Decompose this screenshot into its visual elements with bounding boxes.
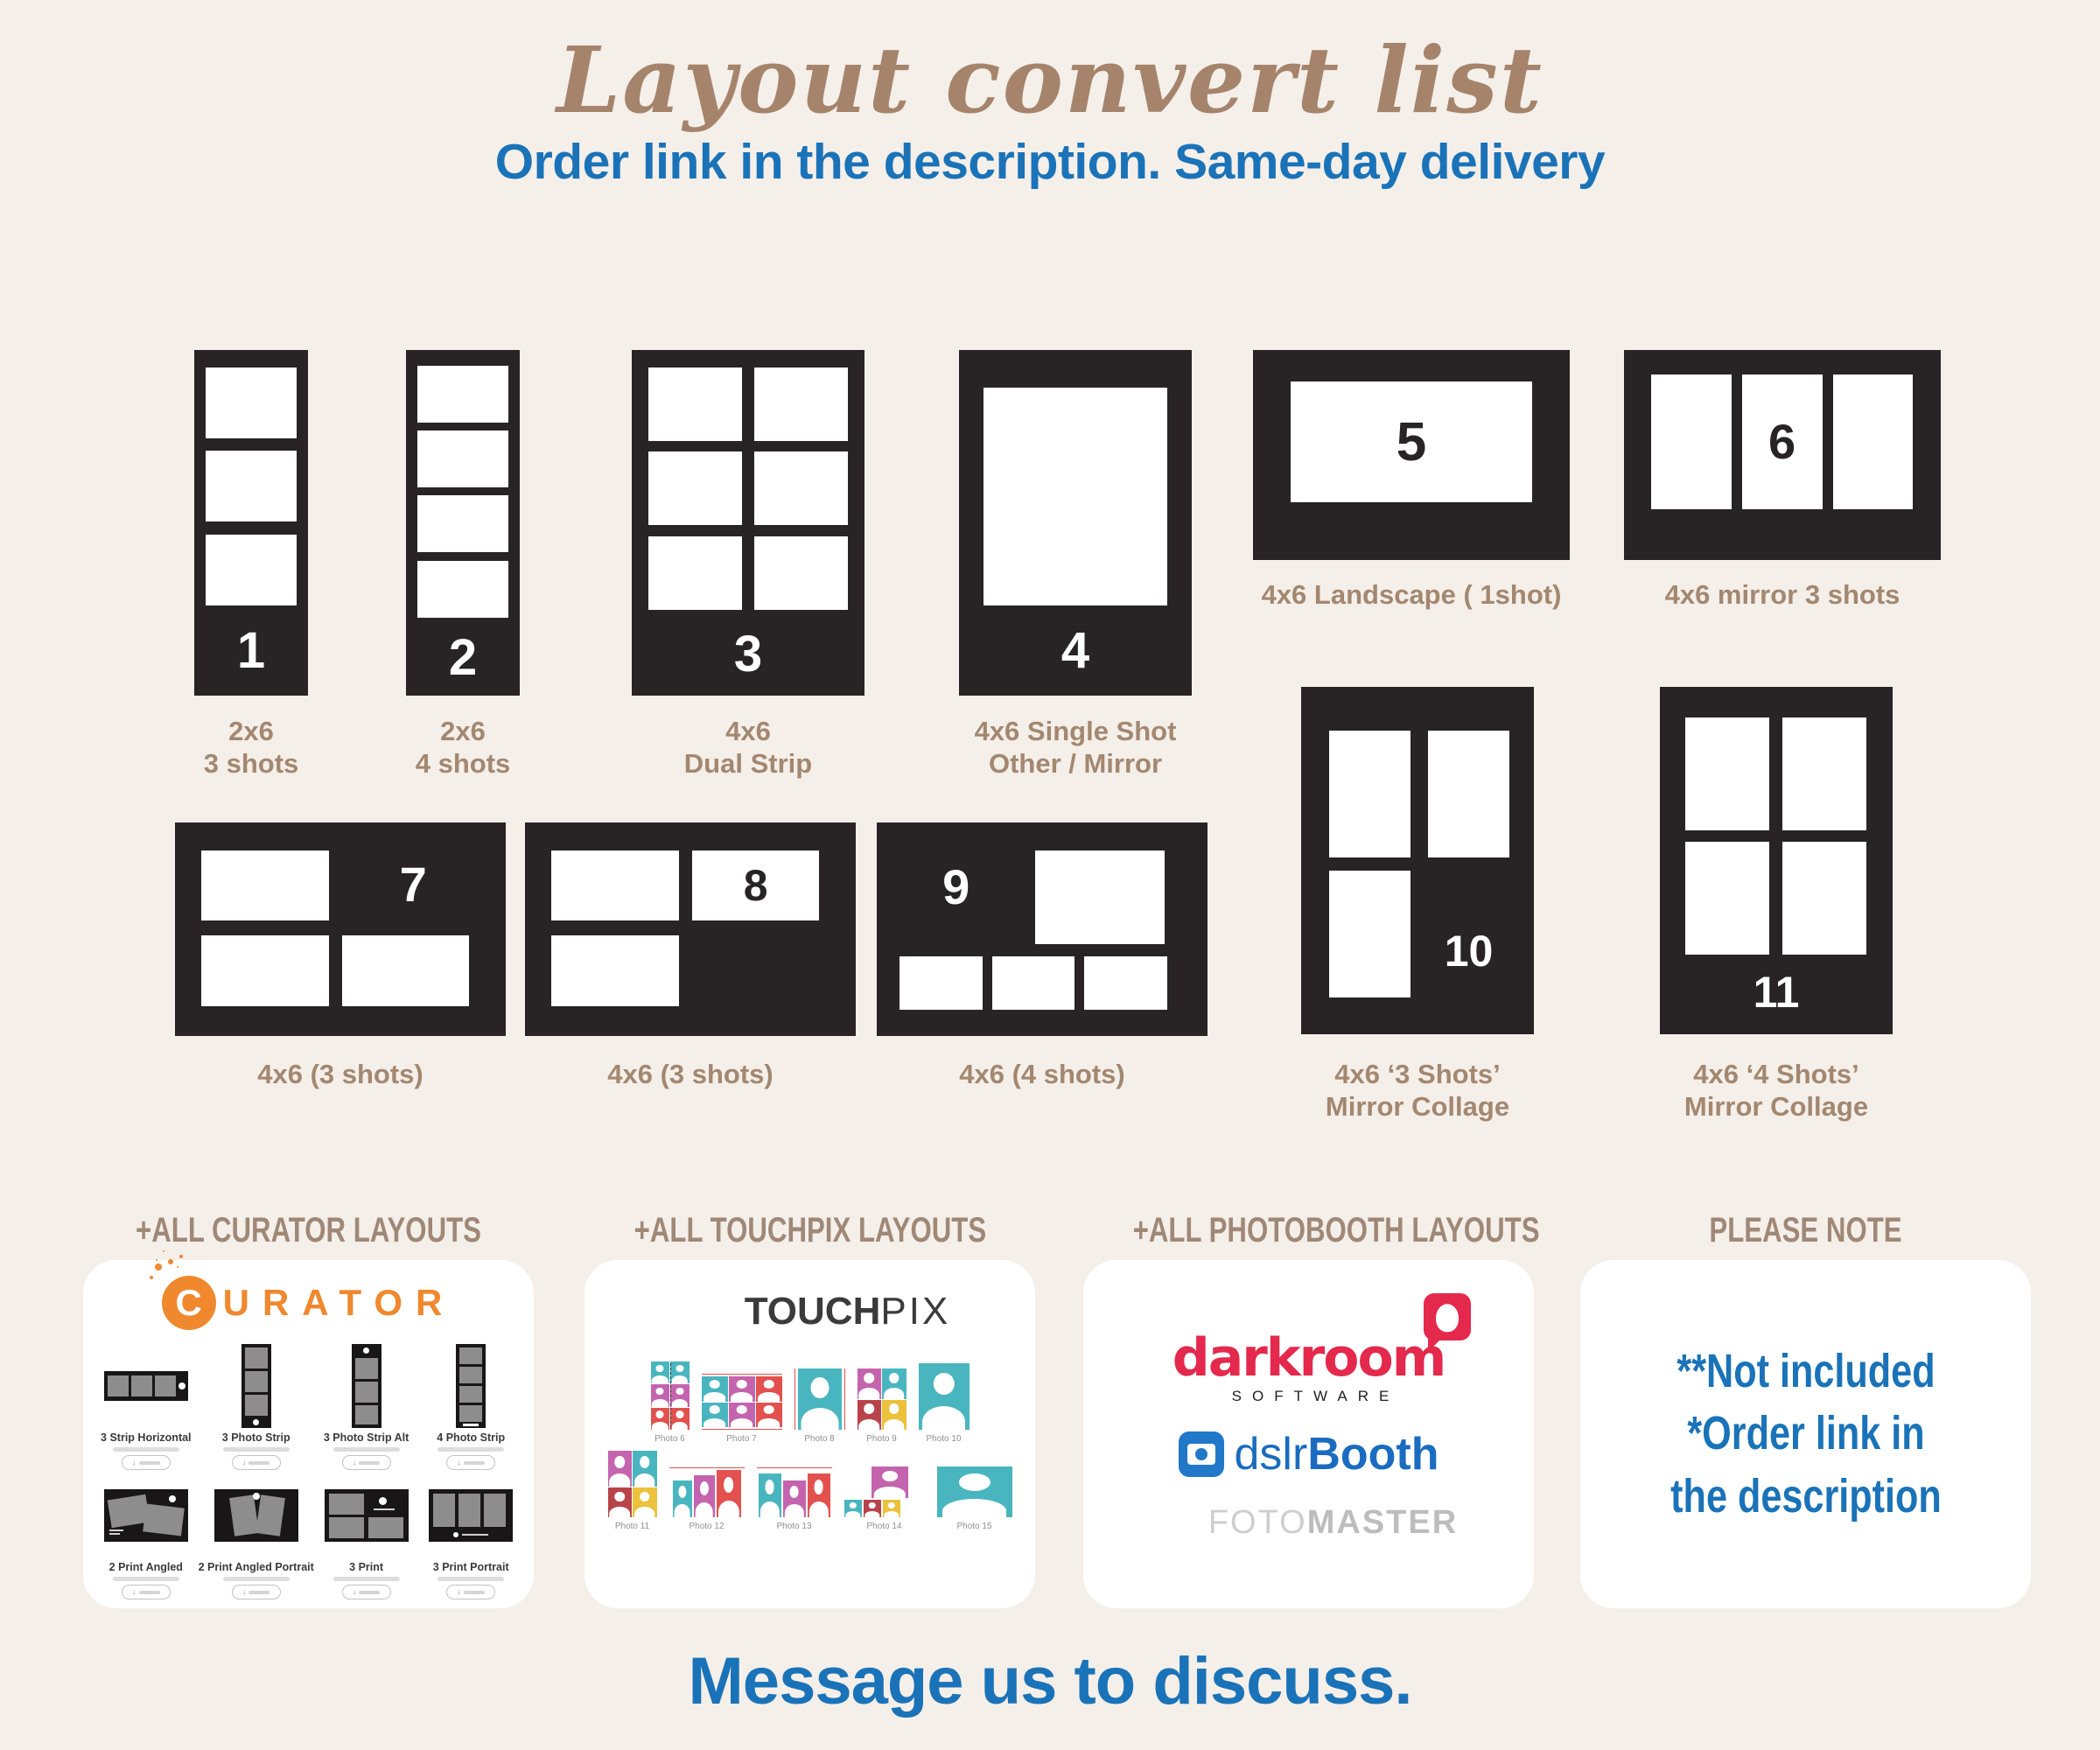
layout-11-thumbnail: 11: [1660, 687, 1893, 1034]
photo-slot: [754, 536, 849, 610]
label-line: 4x6 (3 shots): [525, 1059, 856, 1091]
layout-9-number: 9: [910, 848, 1003, 925]
dimension-text-placeholder: [113, 1577, 179, 1581]
label-line: 4x6 (3 shots): [175, 1059, 506, 1091]
touchpix-tile: Photo 9: [857, 1368, 906, 1444]
photo-slot: 8: [692, 850, 820, 921]
layout-3-thumbnail: 3: [632, 350, 864, 696]
touchpix-ring-icon: [669, 1279, 734, 1344]
photo-slot: [551, 935, 679, 1006]
page-title: Layout convert list: [0, 26, 2100, 134]
curator-thumb-3-strip-horizontal: [104, 1371, 188, 1401]
layout-6-label: 4x6 mirror 3 shots: [1624, 579, 1941, 612]
label-line: 4x6 (4 shots): [877, 1059, 1207, 1091]
curator-thumb-3-print-portrait: [429, 1489, 513, 1542]
label-line: 2x6: [137, 716, 365, 748]
label-line: 4x6 Single Shot: [935, 716, 1215, 748]
curator-logo: C URATOR: [83, 1276, 534, 1330]
layout-4-thumbnail: 4: [959, 350, 1192, 696]
label-line: 4x6 ‘3 Shots’: [1292, 1059, 1543, 1091]
photobooth-card: darkroom SOFTWARE dslrBooth FOTOMASTER: [1083, 1260, 1534, 1608]
label-line: 4 shots: [349, 748, 577, 780]
darkroom-software-text: SOFTWARE: [1172, 1388, 1445, 1405]
fotomaster-aperture-icon: [1159, 1503, 1198, 1542]
layout-5-thumbnail: 5: [1253, 350, 1570, 560]
label-line: 4x6 mirror 3 shots: [1624, 579, 1941, 612]
layout-7-thumbnail: 7: [175, 822, 506, 1036]
dimension-text-placeholder: [437, 1577, 504, 1581]
photo-slot: [754, 367, 849, 441]
touchpix-layout-grid: Photo 6 Photo 7 Photo 8: [591, 1361, 1028, 1538]
curator-logo-text: URATOR: [223, 1282, 456, 1324]
curator-tile: 4 Photo Strip ↓: [418, 1344, 523, 1473]
touchpix-tile: Photo 10: [919, 1363, 969, 1444]
note-line-2: *Order link in the description: [1655, 1403, 1956, 1528]
download-icon: ↓: [457, 1459, 461, 1466]
fotomaster-logo: FOTOMASTER: [1159, 1503, 1458, 1542]
download-pill: ↓: [122, 1585, 171, 1599]
photo-slot: [1833, 374, 1914, 510]
download-pill: ↓: [342, 1585, 391, 1599]
photo-slot: [1685, 717, 1769, 830]
download-icon: ↓: [132, 1459, 136, 1466]
curator-section-header: +ALL CURATOR LAYOUTS: [133, 1211, 485, 1249]
photo-slot: [201, 850, 329, 921]
layout-2-thumbnail: 2: [406, 350, 520, 696]
layout-5-number: 5: [1396, 411, 1426, 473]
curator-card: C URATOR 3 Strip Horizontal ↓: [83, 1260, 534, 1608]
photo-slot: [899, 956, 983, 1010]
curator-tile: 3 Photo Strip ↓: [199, 1344, 314, 1473]
layout-5-label: 4x6 Landscape ( 1shot): [1253, 579, 1570, 612]
dimension-text-placeholder: [223, 1577, 290, 1581]
download-icon: ↓: [242, 1588, 247, 1596]
darkroom-logo-text: darkroom: [1172, 1332, 1445, 1384]
photo-slot: [417, 430, 508, 487]
curator-thumb-4-photo-strip: [456, 1344, 486, 1428]
touchpix-tile: Photo 8: [794, 1368, 845, 1444]
photo-slot: [1329, 731, 1410, 857]
dslrbooth-logo-text: dslrBooth: [1235, 1431, 1439, 1477]
download-pill: ↓: [446, 1455, 495, 1470]
layout-1-number: 1: [194, 612, 308, 689]
curator-logo-letter: C: [175, 1282, 201, 1324]
layout-3-number: 3: [632, 618, 864, 690]
photo-slot: [992, 956, 1075, 1010]
touchpix-caption: Photo 14: [866, 1522, 901, 1531]
touchpix-caption: Photo 10: [926, 1434, 961, 1444]
layout-8-number: 8: [744, 860, 768, 911]
photo-slot: [648, 536, 743, 610]
curator-tile-caption: 3 Strip Horizontal: [101, 1431, 191, 1444]
layout-10-number: 10: [1422, 909, 1515, 992]
curator-tile: 3 Print ↓: [314, 1473, 419, 1603]
download-icon: ↓: [353, 1588, 357, 1596]
subtitle: Order link in the description. Same-day …: [0, 133, 2100, 191]
layout-8-thumbnail: 8: [525, 822, 856, 1036]
curator-tile: 2 Print Angled Portrait ↓: [199, 1473, 314, 1603]
curator-tile-caption: 2 Print Angled: [109, 1561, 183, 1573]
photo-slot: [206, 367, 297, 438]
photo-slot: [342, 935, 470, 1006]
dimension-text-placeholder: [113, 1447, 179, 1452]
layout-4-number: 4: [959, 612, 1192, 689]
photo-slot: [1035, 850, 1164, 944]
layout-10-thumbnail: 10: [1301, 687, 1534, 1034]
curator-tile: 3 Print Portrait ↓: [418, 1473, 523, 1603]
touchpix-tile: Photo 6: [651, 1361, 689, 1444]
curator-tile: 3 Photo Strip Alt ↓: [314, 1344, 419, 1473]
curator-thumb-2-print-angled-portrait: [214, 1489, 298, 1542]
touchpix-tile: Photo 15: [937, 1466, 1012, 1531]
download-icon: ↓: [242, 1459, 247, 1466]
curator-tile-caption: 2 Print Angled Portrait: [199, 1561, 314, 1573]
label-line: 2x6: [349, 716, 577, 748]
layout-10-label: 4x6 ‘3 Shots’ Mirror Collage: [1292, 1059, 1543, 1123]
curator-tile: 3 Strip Horizontal ↓: [94, 1344, 199, 1473]
dimension-text-placeholder: [223, 1447, 290, 1452]
layout-9-label: 4x6 (4 shots): [877, 1059, 1207, 1091]
layout-1-label: 2x6 3 shots: [137, 716, 365, 780]
curator-logo-icon: C: [162, 1276, 216, 1330]
touchpix-logo-light: PIX: [880, 1290, 950, 1333]
photo-slot: [417, 366, 508, 423]
layout-7-number: 7: [357, 843, 470, 925]
curator-thumb-3-photo-strip: [241, 1344, 271, 1428]
dimension-text-placeholder: [333, 1577, 400, 1581]
layout-6-number: 6: [1768, 413, 1795, 470]
photo-slot: [1428, 731, 1509, 857]
photo-slot: 5: [1291, 381, 1531, 502]
photo-slot: [206, 535, 297, 605]
layout-11-label: 4x6 ‘4 Shots’ Mirror Collage: [1651, 1059, 1901, 1123]
touchpix-logo-bold: TOUCH: [745, 1290, 881, 1333]
touchpix-section-header: +ALL TOUCHPIX LAYOUTS: [634, 1211, 986, 1249]
touchpix-tile: Photo 7: [702, 1374, 782, 1444]
layout-4-label: 4x6 Single Shot Other / Mirror: [935, 716, 1215, 780]
note-text: **Not included *Order link in the descri…: [1655, 1340, 1956, 1528]
photo-slot: [648, 451, 743, 525]
touchpix-caption: Photo 6: [654, 1434, 684, 1444]
footer-message: Message us to discuss.: [0, 1643, 2100, 1719]
layout-2-label: 2x6 4 shots: [349, 716, 577, 780]
layout-2-number: 2: [406, 623, 520, 692]
dimension-text-placeholder: [437, 1447, 504, 1452]
download-pill: ↓: [122, 1455, 171, 1470]
photo-slot: [551, 850, 679, 921]
touchpix-caption: Photo 7: [726, 1434, 756, 1444]
label-line: Mirror Collage: [1651, 1091, 1901, 1123]
touchpix-card: TOUCHPIX Photo 6: [584, 1260, 1035, 1608]
fotomaster-logo-bold: MASTER: [1307, 1504, 1458, 1541]
touchpix-logo: TOUCHPIX: [584, 1279, 1035, 1344]
photo-slot: [1329, 871, 1410, 997]
poster: Layout convert list Order link in the de…: [0, 0, 2100, 1750]
touchpix-caption: Photo 15: [956, 1522, 991, 1531]
photo-slot: [983, 388, 1167, 605]
touchpix-caption: Photo 13: [776, 1522, 811, 1531]
photo-slot: [206, 451, 297, 521]
label-line: 4x6: [634, 716, 862, 748]
label-line: 4x6 ‘4 Shots’: [1651, 1059, 1901, 1091]
touchpix-tile: Photo 14: [844, 1466, 925, 1531]
photo-slot: 6: [1742, 374, 1823, 510]
curator-thumb-3-print: [325, 1489, 409, 1542]
dslrbooth-logo-light: dslr: [1235, 1429, 1308, 1480]
fotomaster-logo-text: FOTOMASTER: [1208, 1506, 1458, 1539]
photo-slot: [417, 561, 508, 618]
touchpix-caption: Photo 9: [866, 1434, 896, 1444]
photo-slot: [1685, 842, 1769, 955]
photo-slot: [648, 367, 743, 441]
dslrbooth-camera-icon: [1179, 1431, 1224, 1477]
please-note-header: PLEASE NOTE: [1630, 1211, 1982, 1249]
label-line: Other / Mirror: [935, 748, 1215, 780]
layout-8-label: 4x6 (3 shots): [525, 1059, 856, 1091]
photo-slot: [201, 935, 329, 1006]
photobooth-section-header: +ALL PHOTOBOOTH LAYOUTS: [1133, 1211, 1485, 1249]
dslrbooth-logo: dslrBooth: [1179, 1431, 1439, 1477]
download-pill: ↓: [232, 1585, 281, 1599]
fotomaster-logo-light: FOTO: [1208, 1504, 1307, 1541]
curator-tile: 2 Print Angled ↓: [94, 1473, 199, 1603]
touchpix-tile: Photo 13: [757, 1467, 832, 1531]
please-note-card: **Not included *Order link in the descri…: [1580, 1260, 2031, 1608]
touchpix-tile: Photo 12: [669, 1467, 745, 1531]
note-line-1: **Not included: [1655, 1340, 1956, 1403]
touchpix-logo-text: TOUCHPIX: [745, 1290, 951, 1333]
curator-layout-grid: 3 Strip Horizontal ↓ 3 Photo Strip ↓: [94, 1344, 523, 1603]
touchpix-caption: Photo 11: [615, 1522, 649, 1531]
label-line: Dual Strip: [634, 748, 862, 780]
curator-tile-caption: 3 Print Portrait: [433, 1561, 509, 1573]
dslrbooth-logo-bold: Booth: [1307, 1429, 1438, 1480]
photo-slot: [1782, 717, 1866, 830]
download-icon: ↓: [457, 1588, 461, 1596]
touchpix-caption: Photo 12: [689, 1522, 724, 1531]
label-line: 4x6 Landscape ( 1shot): [1253, 579, 1570, 612]
photo-slot: [417, 495, 508, 552]
curator-thumb-2-print-angled: [104, 1489, 188, 1542]
darkroom-logo: darkroom SOFTWARE: [1172, 1332, 1445, 1405]
photo-slot: [1651, 374, 1732, 510]
photo-slot: [1084, 956, 1167, 1010]
download-icon: ↓: [353, 1459, 357, 1466]
curator-tile-caption: 4 Photo Strip: [437, 1431, 505, 1444]
label-line: Mirror Collage: [1292, 1091, 1543, 1123]
photo-slot: [754, 451, 849, 525]
download-pill: ↓: [446, 1585, 495, 1599]
layout-9-thumbnail: 9: [877, 822, 1207, 1036]
curator-tile-caption: 3 Photo Strip: [222, 1431, 290, 1444]
layout-11-number: 11: [1660, 962, 1893, 1024]
layout-3-label: 4x6 Dual Strip: [634, 716, 862, 780]
touchpix-tile: Photo 11: [608, 1451, 657, 1531]
download-pill: ↓: [342, 1455, 391, 1470]
download-icon: ↓: [132, 1588, 136, 1596]
photo-slot: [1782, 842, 1866, 955]
darkroom-bulb-icon: [1424, 1293, 1471, 1340]
layout-6-thumbnail: 6: [1624, 350, 1941, 560]
label-line: 3 shots: [137, 748, 365, 780]
layout-7-label: 4x6 (3 shots): [175, 1059, 506, 1091]
download-pill: ↓: [232, 1455, 281, 1470]
dimension-text-placeholder: [333, 1447, 400, 1452]
layout-1-thumbnail: 1: [194, 350, 308, 696]
curator-thumb-3-photo-strip-alt: [352, 1344, 381, 1428]
touchpix-caption: Photo 8: [804, 1434, 834, 1444]
curator-tile-caption: 3 Photo Strip Alt: [324, 1431, 409, 1444]
curator-tile-caption: 3 Print: [349, 1561, 383, 1573]
